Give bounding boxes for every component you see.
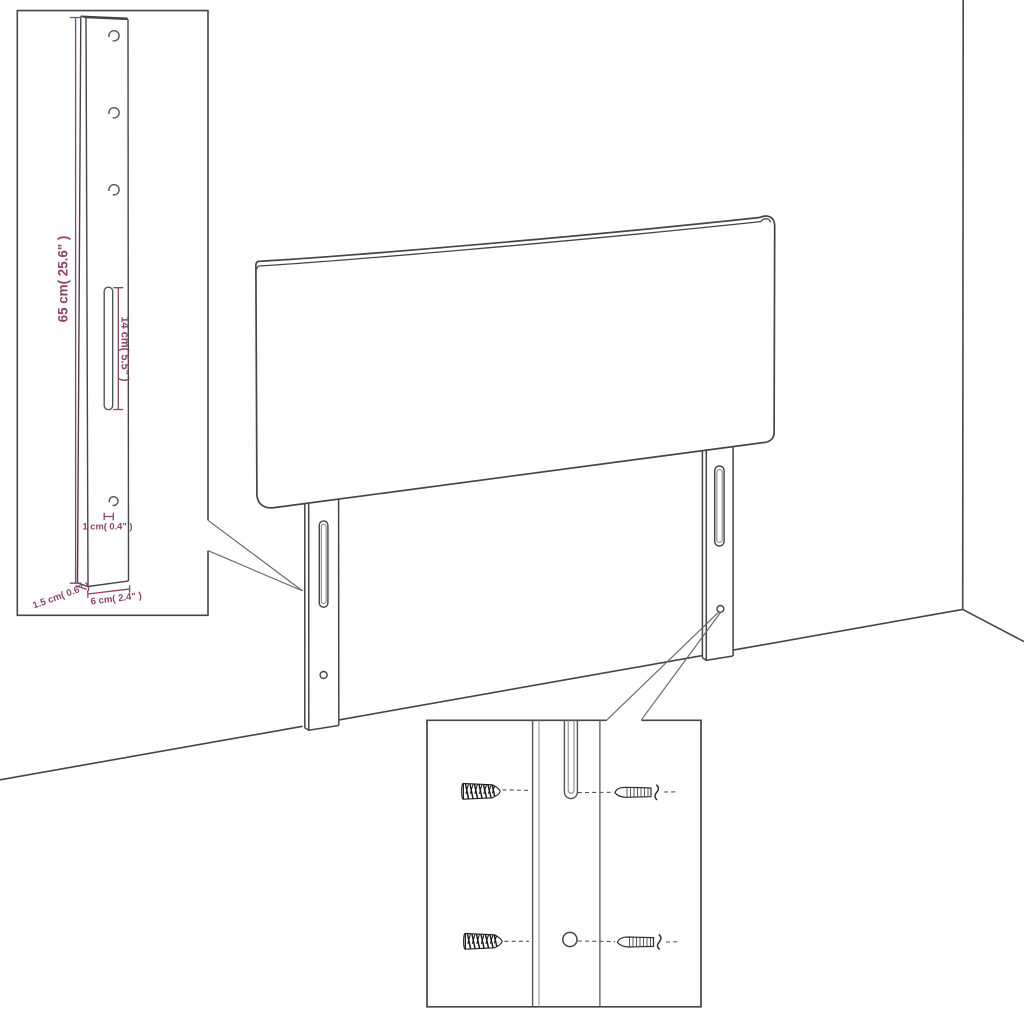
svg-text:1 cm( 0.4" ): 1 cm( 0.4" ) — [83, 522, 133, 532]
svg-text:14 cm( 5.5" ): 14 cm( 5.5" ) — [119, 316, 131, 381]
svg-text:65 cm( 25.6" ): 65 cm( 25.6" ) — [56, 236, 71, 323]
svg-text:1.5 cm( 0.6" ): 1.5 cm( 0.6" ) — [31, 581, 91, 612]
